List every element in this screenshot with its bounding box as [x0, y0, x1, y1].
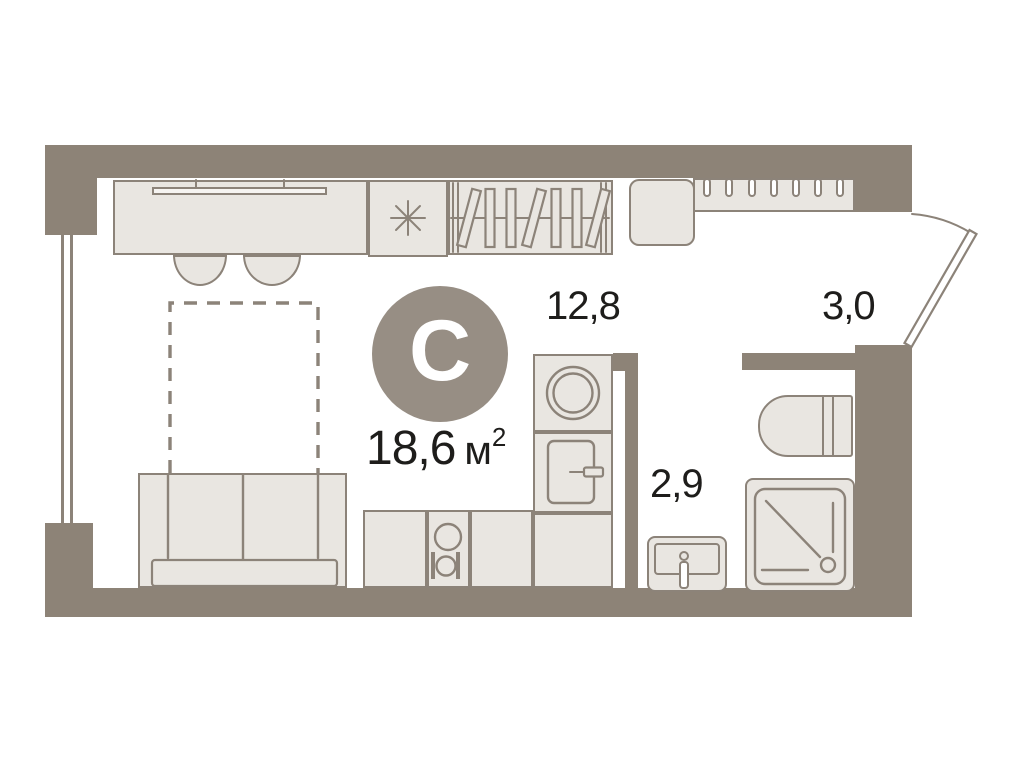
apartment-type-badge: С: [372, 286, 508, 422]
desk-monitor: [152, 187, 327, 195]
wall-partition-stub: [613, 353, 638, 371]
total-area-unit: м: [464, 429, 491, 473]
wall-bottom-left-corner: [45, 523, 93, 617]
floor-plan: С 18,6м2 12,8 2,9 3,0: [0, 0, 1024, 768]
shower-tray: [745, 478, 855, 592]
apartment-type-letter: С: [409, 302, 471, 401]
kitchen-counter-left: [363, 510, 427, 588]
wardrobe: [448, 180, 613, 255]
washing-machine: [533, 354, 613, 432]
hallway-cabinet: [629, 179, 695, 246]
coat-rack-shelf: [693, 178, 855, 212]
kitchen-base-cabinet: [533, 513, 613, 588]
cooktop-unit: [427, 510, 470, 588]
chair-right: [243, 255, 301, 286]
window: [61, 235, 73, 532]
hallway-area-label: 3,0: [822, 286, 875, 326]
total-area-unit-sup: 2: [492, 422, 505, 452]
door-leaf: [905, 230, 977, 347]
total-area-label: 18,6м2: [366, 424, 505, 473]
toilet: [758, 395, 853, 457]
wall-right: [855, 345, 912, 588]
living-room-area-label: 12,8: [546, 286, 620, 326]
wall-top-left-corner: [45, 145, 97, 235]
entrance-door: [905, 214, 977, 347]
bathroom-area-label: 2,9: [650, 464, 703, 504]
wall-bottom: [93, 588, 912, 617]
bathroom-sink-basin: [654, 543, 720, 575]
chair-left: [173, 255, 227, 286]
kitchen-counter-mid: [470, 510, 533, 588]
sofa: [138, 473, 347, 588]
wall-bathroom-top: [742, 353, 855, 370]
wall-top-right-corner: [855, 145, 912, 212]
wall-partition: [625, 371, 638, 588]
bed-dashed-outline: [170, 303, 318, 473]
asterisk-unit: [368, 180, 448, 257]
total-area-value: 18,6: [366, 422, 455, 475]
wall-top: [97, 145, 855, 178]
oven-cabinet: [533, 432, 613, 513]
door-swing-arc: [912, 214, 971, 233]
